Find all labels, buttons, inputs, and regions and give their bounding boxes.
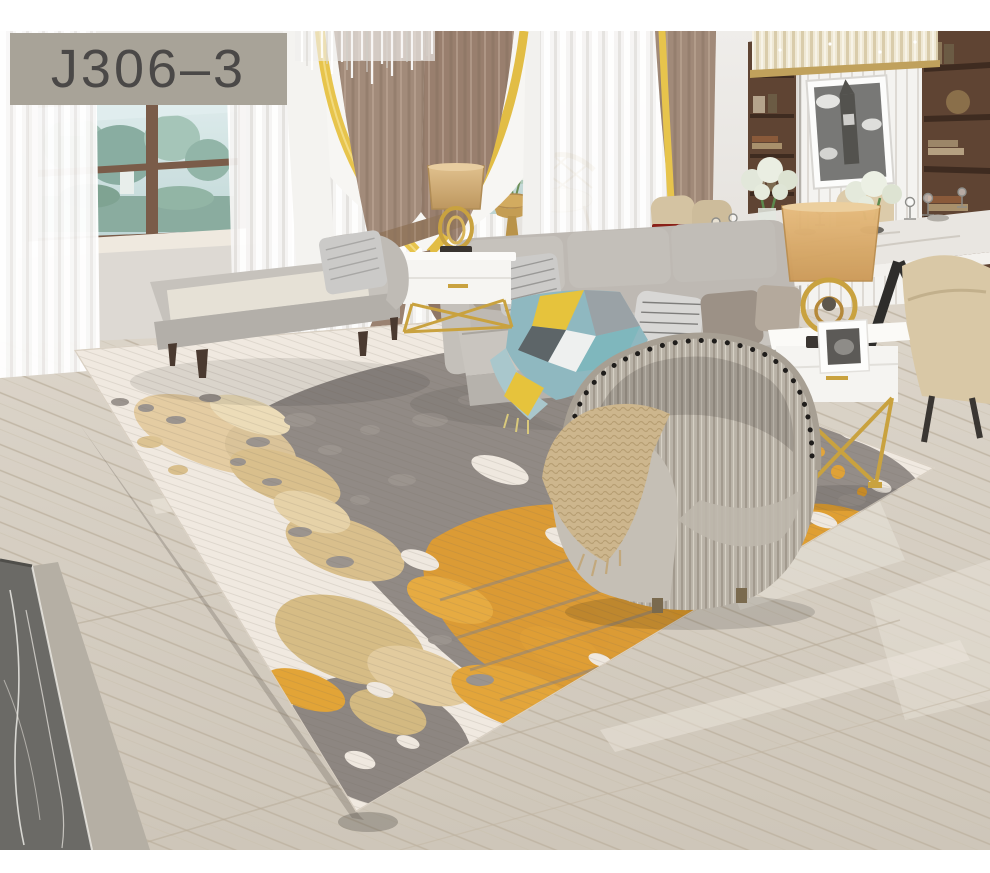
product-label-text: J306–3 [51,38,246,100]
big-ben-art [806,75,893,188]
product-label: J306–3 [10,33,287,105]
photo-frame [818,320,870,373]
pillow-beige [754,285,801,334]
stage: J306–3 [0,0,990,873]
rug-corner-shadow [338,812,398,832]
living-room-photo [0,0,990,873]
chaise-pillow [318,229,388,295]
